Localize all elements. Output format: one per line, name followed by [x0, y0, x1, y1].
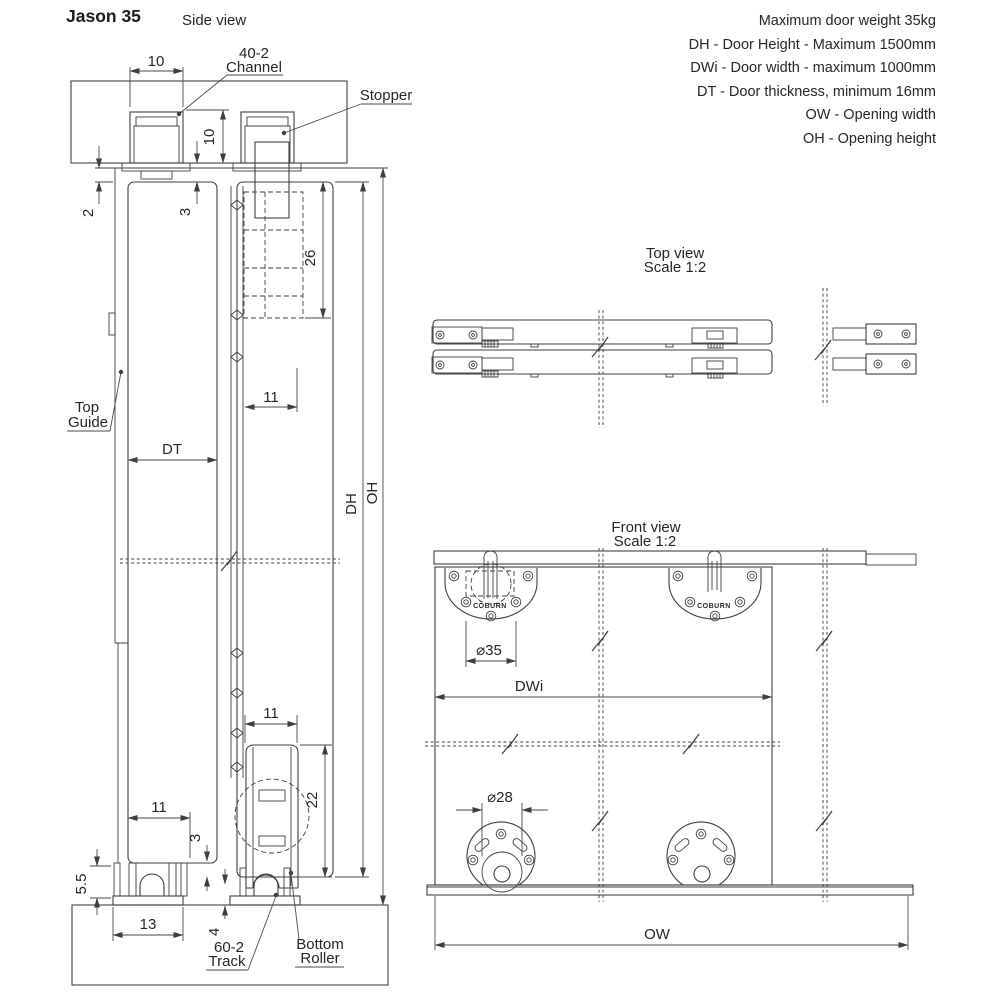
break-line-horizontal — [120, 551, 340, 571]
dim-stopper-drop: 26 — [302, 250, 319, 267]
dim-top-clearance: 3 — [177, 208, 194, 216]
callout-channel-line2: Channel — [226, 59, 282, 76]
top-view-guide-pieces — [815, 288, 916, 406]
drawing-page: Jason 35 Side view Maximum door weight 3… — [0, 0, 1000, 1000]
dim-opening-width: OW — [644, 926, 671, 943]
callout-stopper-label: Stopper — [360, 87, 413, 104]
side-view-title: Side view — [182, 12, 246, 29]
front-view-drawing: Front view Scale 1:2 COBURN — [425, 519, 916, 950]
bottom-track — [427, 885, 913, 895]
front-view-break-lines — [425, 548, 832, 902]
dim-engagement: 5.5 — [73, 874, 90, 895]
track-profile-left — [113, 863, 187, 905]
callout-track-line2: Track — [209, 953, 246, 970]
dim-roller-diameter: ⌀28 — [487, 789, 513, 806]
callout-bottom-roller-line2: Roller — [300, 950, 339, 967]
side-view-dimensions: 10 10 2 3 26 11 DT — [73, 53, 383, 941]
spec-max-weight: Maximum door weight 35kg — [759, 13, 936, 29]
door-panel-left — [128, 182, 217, 863]
dim-hanger-inset: 11 — [263, 389, 279, 406]
callout-bottom-roller: Bottom Roller — [289, 871, 344, 967]
hanger-hidden-detail — [244, 192, 303, 318]
dim-track-inset: 11 — [151, 799, 167, 816]
dim-channel-width: 10 — [148, 53, 165, 70]
dim-track-width: 13 — [140, 916, 157, 933]
dim-door-height: DH — [343, 493, 360, 515]
brand-text-2: COBURN — [697, 603, 731, 610]
page-title: Jason 35 — [66, 6, 141, 26]
dim-opening-height: OH — [364, 482, 381, 505]
spec-opening-height: OH - Opening height — [803, 131, 936, 147]
dim-hanger-diameter: ⌀35 — [476, 642, 502, 659]
bottom-roller-housing — [235, 745, 309, 888]
top-view-break-line — [592, 310, 608, 428]
technical-drawing: Jason 35 Side view Maximum door weight 3… — [0, 0, 1000, 1000]
dim-roller-height: 22 — [304, 792, 321, 809]
side-view-drawing: 10 10 2 3 26 11 DT — [67, 45, 412, 985]
roller-wheel-1 — [482, 852, 522, 892]
dim-door-width: DWi — [515, 678, 543, 695]
side-view-callouts: 40-2 Channel Stopper Top Guide 60-2 Trac… — [67, 45, 412, 970]
top-view-drawing: Top view Scale 1:2 — [432, 245, 916, 428]
stopper-block — [255, 142, 289, 218]
specs-list: Maximum door weight 35kg DH - Door Heigh… — [689, 13, 936, 147]
callout-top-guide-line2: Guide — [68, 414, 108, 431]
dim-track-lift: 4 — [206, 928, 223, 936]
dim-door-thickness: DT — [162, 441, 182, 458]
brand-text-1: COBURN — [473, 603, 507, 610]
spec-opening-width: OW - Opening width — [805, 107, 936, 123]
spec-door-width: DWi - Door width - maximum 1000mm — [690, 60, 936, 76]
hanger-plate-2: COBURN — [669, 551, 761, 621]
spec-door-thickness: DT - Door thickness, minimum 16mm — [697, 84, 936, 100]
dim-channel-height: 10 — [201, 129, 218, 146]
header-block — [71, 81, 347, 163]
dim-bottom-clearance: 3 — [187, 834, 204, 842]
door-panel-front — [435, 567, 772, 885]
top-view-panel-1 — [432, 320, 772, 348]
bottom-roller-1 — [467, 822, 535, 892]
front-view-scale: Scale 1:2 — [614, 533, 677, 550]
top-rail — [434, 551, 916, 565]
top-view-panel-2 — [432, 350, 772, 378]
top-view-scale: Scale 1:2 — [644, 259, 707, 276]
front-view-dimensions: ⌀35 DWi ⌀28 OW — [435, 621, 908, 950]
door-panel-right — [237, 182, 333, 877]
spec-door-height: DH - Door Height - Maximum 1500mm — [689, 37, 936, 53]
dim-roller-inset: 11 — [263, 705, 279, 722]
channel-assembly — [122, 112, 190, 179]
dim-top-gap: 2 — [80, 209, 97, 217]
top-guide-rail — [109, 168, 128, 863]
hanger-plate-1: COBURN — [445, 551, 537, 621]
bottom-roller-2 — [667, 822, 735, 885]
